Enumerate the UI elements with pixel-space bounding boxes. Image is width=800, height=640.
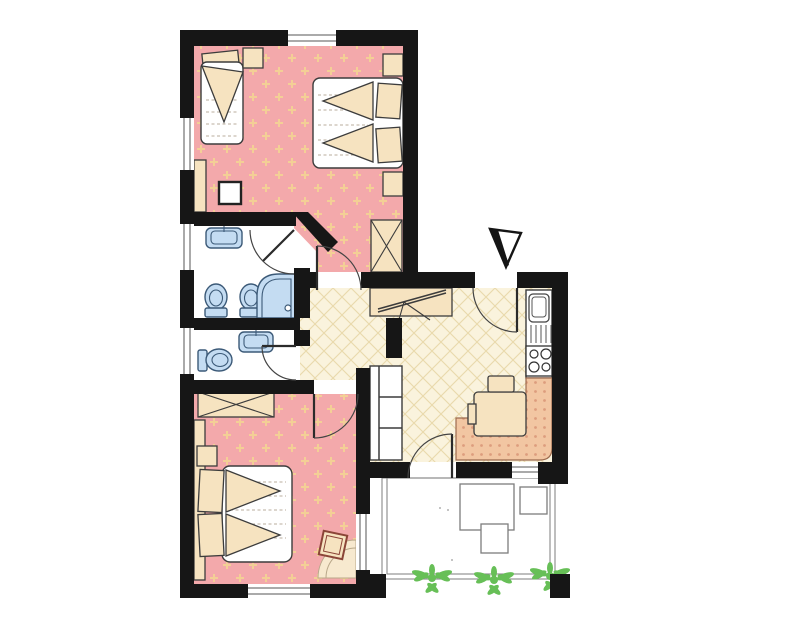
table-extension bbox=[468, 404, 476, 424]
speckle bbox=[451, 559, 453, 561]
double-bed bbox=[198, 466, 292, 562]
wardrobe bbox=[198, 392, 274, 417]
dining-chair bbox=[488, 376, 514, 392]
wall-segment bbox=[456, 462, 512, 478]
balcony-chair bbox=[481, 524, 508, 553]
wall-segment bbox=[294, 268, 310, 318]
double-bed bbox=[313, 78, 403, 168]
nightstand bbox=[383, 54, 403, 76]
floor-plan bbox=[0, 0, 800, 640]
side-table bbox=[219, 182, 241, 204]
speckle bbox=[447, 509, 449, 511]
wall-segment bbox=[552, 272, 568, 464]
wall-segment bbox=[180, 30, 288, 46]
single-bed bbox=[201, 50, 243, 144]
washbasin bbox=[239, 330, 273, 352]
wall-segment bbox=[180, 374, 194, 598]
double-bed-pillow bbox=[198, 469, 224, 512]
wall-segment bbox=[356, 570, 370, 598]
wall-segment bbox=[361, 272, 475, 288]
wall-segment bbox=[186, 380, 314, 394]
wardrobe bbox=[371, 220, 402, 272]
nightstand bbox=[243, 48, 263, 68]
window bbox=[180, 328, 194, 374]
sofa bbox=[370, 366, 402, 460]
toilet bbox=[198, 349, 232, 371]
speckle bbox=[439, 507, 441, 509]
double-bed-pillow bbox=[376, 127, 402, 163]
toilet bbox=[205, 284, 227, 317]
wall-segment bbox=[294, 330, 310, 346]
dining-table bbox=[474, 392, 526, 436]
wall-segment bbox=[538, 462, 568, 484]
washbasin bbox=[206, 226, 242, 248]
double-bed-pillow bbox=[198, 513, 224, 556]
balcony-chair bbox=[520, 487, 547, 514]
wall-segment bbox=[180, 30, 194, 118]
corner-shower bbox=[257, 274, 296, 318]
window bbox=[356, 514, 370, 570]
window bbox=[180, 118, 194, 170]
window bbox=[288, 30, 336, 46]
wall-segment bbox=[186, 212, 296, 226]
wall-segment bbox=[356, 368, 370, 514]
wall-shelf bbox=[194, 160, 206, 212]
wall-segment bbox=[550, 574, 570, 598]
wall-segment bbox=[386, 318, 402, 358]
balcony-table bbox=[460, 484, 514, 530]
nightstand bbox=[197, 446, 217, 466]
wall-segment bbox=[368, 574, 386, 598]
window bbox=[248, 584, 310, 598]
wall-segment bbox=[356, 462, 410, 478]
double-bed-pillow bbox=[376, 83, 402, 119]
wall-segment bbox=[310, 584, 358, 598]
stove bbox=[526, 346, 552, 376]
shower-drain bbox=[285, 305, 291, 311]
wall-segment bbox=[186, 584, 248, 598]
window bbox=[180, 224, 194, 270]
window bbox=[512, 462, 538, 478]
stool bbox=[319, 531, 347, 559]
wall-segment bbox=[403, 30, 418, 278]
nightstand bbox=[383, 172, 403, 196]
wall-segment bbox=[186, 318, 300, 330]
